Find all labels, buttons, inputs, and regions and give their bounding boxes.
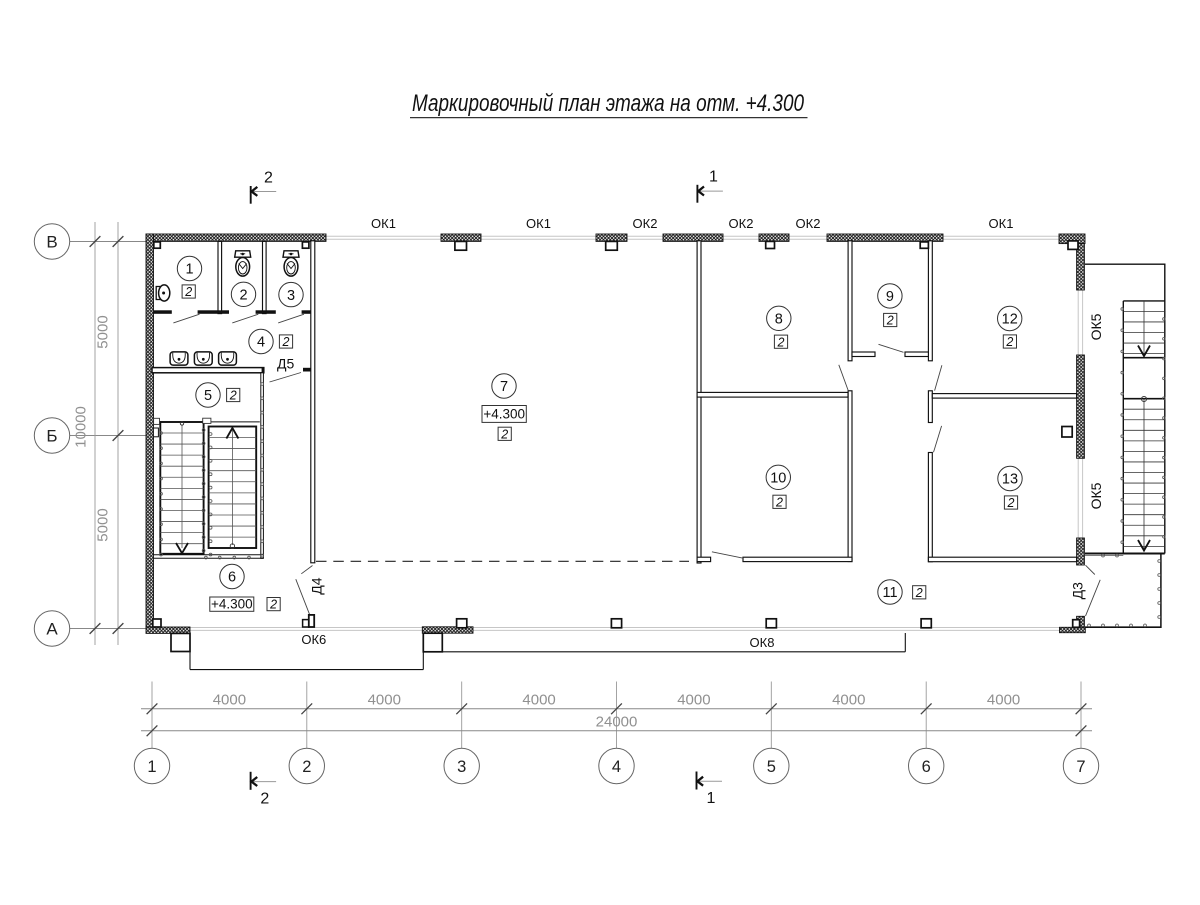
svg-text:2: 2 [775,495,783,509]
svg-text:4: 4 [612,758,621,776]
svg-text:1: 1 [185,262,193,278]
svg-text:7: 7 [500,379,508,395]
svg-text:24000: 24000 [596,714,638,731]
svg-text:8: 8 [775,312,783,328]
svg-text:ОК2: ОК2 [633,216,658,231]
svg-text:1: 1 [709,169,718,186]
svg-text:ОК2: ОК2 [796,216,821,231]
svg-text:2: 2 [282,335,290,349]
svg-text:2: 2 [886,314,894,328]
svg-text:2: 2 [260,791,269,808]
svg-text:ОК6: ОК6 [301,632,326,647]
svg-text:11: 11 [882,585,897,601]
svg-text:2: 2 [1005,335,1013,349]
svg-text:6: 6 [922,758,931,776]
svg-text:ОК1: ОК1 [989,216,1014,231]
svg-text:3: 3 [287,288,295,304]
svg-text:4000: 4000 [368,692,401,709]
svg-text:5000: 5000 [95,508,112,541]
svg-text:ОК1: ОК1 [526,216,551,231]
svg-text:2: 2 [184,285,192,299]
svg-text:10000: 10000 [73,406,90,448]
svg-text:ОК5: ОК5 [1088,313,1104,340]
svg-text:12: 12 [1002,312,1018,328]
svg-text:В: В [46,233,57,252]
svg-text:13: 13 [1002,472,1018,488]
svg-text:+4.300: +4.300 [211,596,253,611]
svg-text:4000: 4000 [213,692,246,709]
svg-text:9: 9 [886,289,894,305]
svg-text:5000: 5000 [95,315,112,348]
svg-text:ОК1: ОК1 [371,216,396,231]
svg-text:2: 2 [1007,496,1015,510]
svg-text:4: 4 [257,335,265,351]
svg-text:6: 6 [228,570,236,586]
svg-text:Д4: Д4 [309,577,325,594]
svg-text:А: А [46,620,58,639]
svg-text:1: 1 [707,790,716,807]
svg-text:2: 2 [500,427,508,441]
svg-text:2: 2 [915,586,923,600]
svg-text:4000: 4000 [987,692,1020,709]
svg-text:Д5: Д5 [277,356,294,372]
svg-text:2: 2 [239,288,247,304]
svg-text:Маркировочный план этажа на от: Маркировочный план этажа на отм. +4.300 [412,90,805,117]
svg-text:2: 2 [777,335,785,349]
svg-text:3: 3 [457,758,466,776]
svg-text:1: 1 [147,758,156,776]
svg-text:5: 5 [767,758,776,776]
svg-text:2: 2 [229,389,237,403]
svg-text:2: 2 [302,758,311,776]
svg-text:4000: 4000 [677,692,710,709]
svg-text:2: 2 [264,170,273,187]
svg-text:Б: Б [46,427,57,446]
svg-text:+4.300: +4.300 [483,406,525,421]
svg-text:10: 10 [770,471,786,487]
svg-text:5: 5 [204,388,212,404]
svg-text:4000: 4000 [522,692,555,709]
svg-text:4000: 4000 [832,692,865,709]
svg-text:2: 2 [269,598,277,612]
svg-text:ОК2: ОК2 [729,216,754,231]
svg-text:ОК8: ОК8 [750,635,775,650]
svg-text:Д3: Д3 [1070,582,1086,599]
svg-text:ОК5: ОК5 [1088,482,1104,509]
svg-text:7: 7 [1076,758,1085,776]
